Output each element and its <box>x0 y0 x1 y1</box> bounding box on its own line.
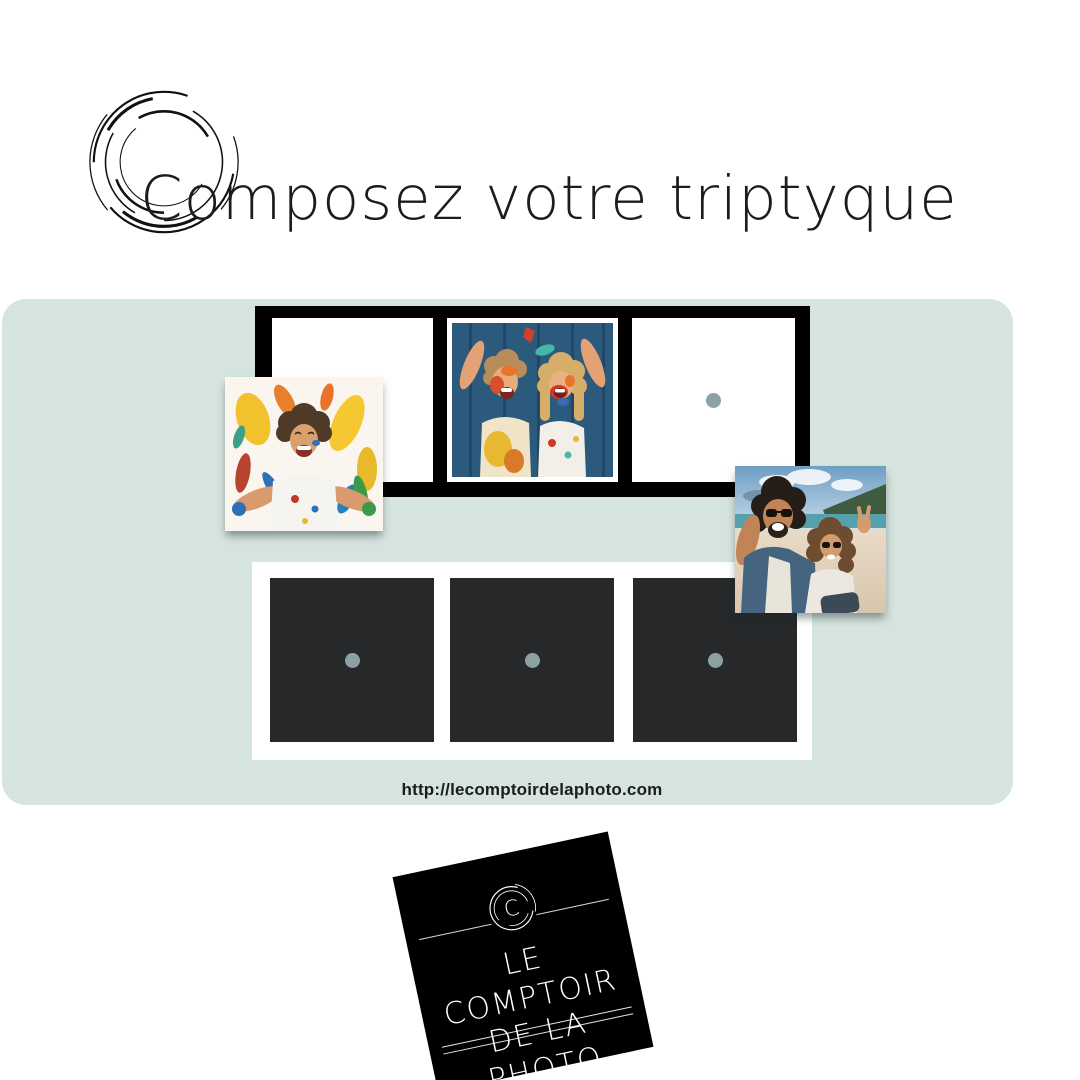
brand-logo: C LE COMPTOIR DE LA PHOTO <box>393 832 654 1080</box>
triptych-strip <box>252 562 812 760</box>
placeholder-dot-icon <box>708 653 723 668</box>
placeholder-dot-icon <box>345 653 360 668</box>
toddler-photo <box>225 377 383 531</box>
page-title: Composez votre triptyque <box>140 163 958 234</box>
strip-slot-1 <box>270 578 434 742</box>
logo-wordmark: LE COMPTOIR DE LA PHOTO <box>412 922 658 1080</box>
toddler-paint-splatter-photo-illustration <box>225 377 383 531</box>
triptych-slot-empty-2 <box>632 318 795 482</box>
strip-slot-2 <box>450 578 614 742</box>
logo-monogram-circle-icon: C <box>477 874 546 943</box>
triptych-slot-photo <box>447 318 618 482</box>
placeholder-dot-icon <box>706 393 721 408</box>
kids-painted-faces-photo-illustration <box>452 323 613 477</box>
website-url: http://lecomptoirdelaphoto.com <box>252 780 812 800</box>
couple-photo <box>735 466 886 613</box>
poster-canvas: Composez votre triptyque <box>0 0 1080 1080</box>
couple-beach-selfie-photo-illustration <box>735 466 886 613</box>
placeholder-dot-icon <box>525 653 540 668</box>
